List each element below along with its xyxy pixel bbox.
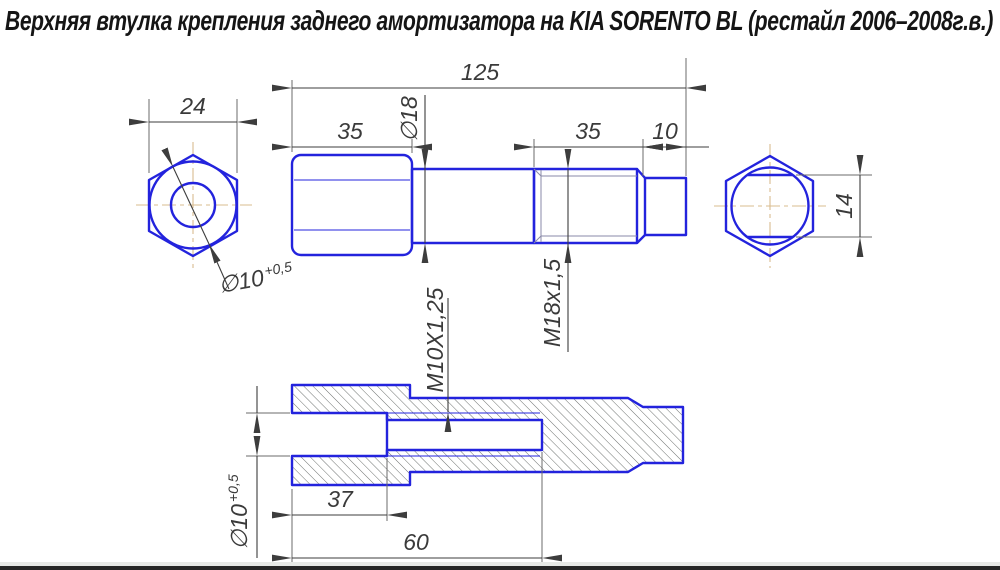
dim-m18-label: M18x1,5 [539, 259, 565, 347]
dim-24-label: 24 [179, 93, 206, 119]
dimension-m18: M18x1,5 [539, 169, 568, 352]
view-left-hex-end: 24 ∅10+0,5 [136, 93, 295, 298]
shaft-section [412, 169, 534, 243]
bore-dia-label: ∅10+0,5 [216, 258, 295, 298]
bottom-dark-strip [0, 566, 1000, 570]
dim-10-label: 10 [652, 118, 678, 144]
dim-60-label: 60 [403, 529, 429, 555]
section-material [292, 385, 683, 485]
hex-section [292, 155, 412, 255]
dim-m10-label: M10X1,25 [422, 287, 448, 392]
dim-35-left-label: 35 [337, 118, 363, 144]
view-section: ∅10+0,5 M10X1,25 37 60 [225, 287, 683, 564]
bottom-light-strip [0, 562, 1000, 566]
dim-dia10-label: ∅10+0,5 [225, 474, 252, 549]
dimension-m10: M10X1,25 [422, 287, 448, 412]
dim-dia18-label: ∅18 [396, 96, 422, 142]
dimension-125: 125 [292, 58, 686, 176]
thread-section [534, 169, 637, 243]
dimension-35-left: 35 [292, 118, 412, 153]
dim-37-label: 37 [327, 486, 354, 512]
drawing-title: Верхняя втулка крепления заднего амортиз… [5, 5, 993, 36]
view-side: 125 35 ∅18 35 10 [292, 58, 709, 352]
dimension-dia10: ∅10+0,5 [225, 386, 290, 558]
technical-drawing-canvas: Верхняя втулка крепления заднего амортиз… [0, 0, 1000, 570]
drawing-page: Верхняя втулка крепления заднего амортиз… [0, 0, 1000, 570]
tip-section [645, 178, 686, 235]
dim-125-label: 125 [461, 59, 500, 85]
view-right-hex-end: 14 [714, 144, 872, 268]
dim-35-right-label: 35 [575, 118, 601, 144]
dimension-10: 10 [621, 118, 709, 147]
dim-14-label: 14 [831, 193, 857, 219]
